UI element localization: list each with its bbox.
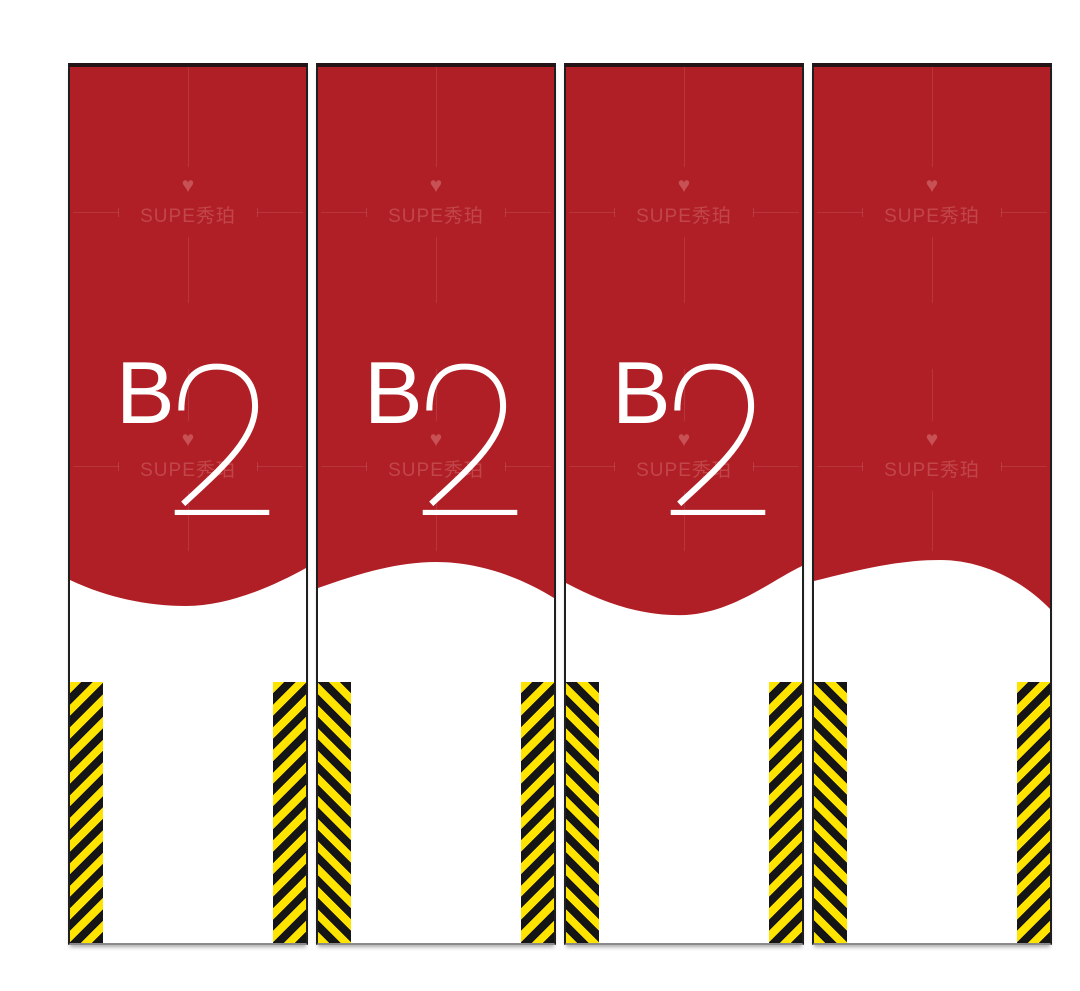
hazard-strip-right [1017, 682, 1050, 943]
guide-line [932, 237, 933, 303]
guide-mark [569, 212, 615, 213]
guide-line [684, 237, 685, 303]
guide-line [932, 67, 933, 167]
floor-letter: B [116, 349, 175, 437]
guide-mark [1001, 466, 1047, 467]
floor-letter: B [612, 349, 671, 437]
guide-mark [73, 212, 119, 213]
floor-label: B [116, 359, 286, 584]
guide-mark [569, 466, 615, 467]
floor-number-glyph [666, 359, 770, 521]
floor-number-glyph [170, 359, 274, 521]
hazard-strip-right [521, 682, 554, 943]
wave-edge [814, 554, 1050, 664]
guide-line [188, 67, 189, 167]
pillar-panel-4: ♥ SUPE秀珀 ♥ SUPE秀珀 [812, 63, 1052, 945]
guide-line [436, 237, 437, 303]
guide-mark [321, 466, 367, 467]
guide-mark [321, 212, 367, 213]
hazard-strip-left [318, 682, 351, 943]
hazard-strip-left [814, 682, 847, 943]
floor-label: B [364, 359, 534, 584]
guide-line [932, 491, 933, 551]
hazard-strip-left [566, 682, 599, 943]
guide-mark [753, 212, 799, 213]
guide-line [436, 67, 437, 167]
floor-number-glyph [418, 359, 522, 521]
guide-mark [73, 466, 119, 467]
pillar-panel-2: ♥ SUPE秀珀 ♥ SUPE秀珀 B [316, 63, 556, 945]
guide-line [932, 369, 933, 421]
floor-letter: B [364, 349, 423, 437]
hazard-strip-right [273, 682, 306, 943]
guide-mark [1001, 212, 1047, 213]
guide-mark [505, 212, 551, 213]
guide-line [684, 67, 685, 167]
guide-mark [817, 466, 863, 467]
pillar-panel-3: ♥ SUPE秀珀 ♥ SUPE秀珀 B [564, 63, 804, 945]
guide-line [188, 237, 189, 303]
floor-label: B [612, 359, 782, 584]
pillar-panel-1: ♥ SUPE秀珀 ♥ SUPE秀珀 B [68, 63, 308, 945]
hazard-strip-left [70, 682, 103, 943]
guide-mark [257, 212, 303, 213]
guide-mark [817, 212, 863, 213]
hazard-strip-right [769, 682, 802, 943]
design-board: ♥ SUPE秀珀 ♥ SUPE秀珀 B ♥ [0, 0, 1080, 991]
